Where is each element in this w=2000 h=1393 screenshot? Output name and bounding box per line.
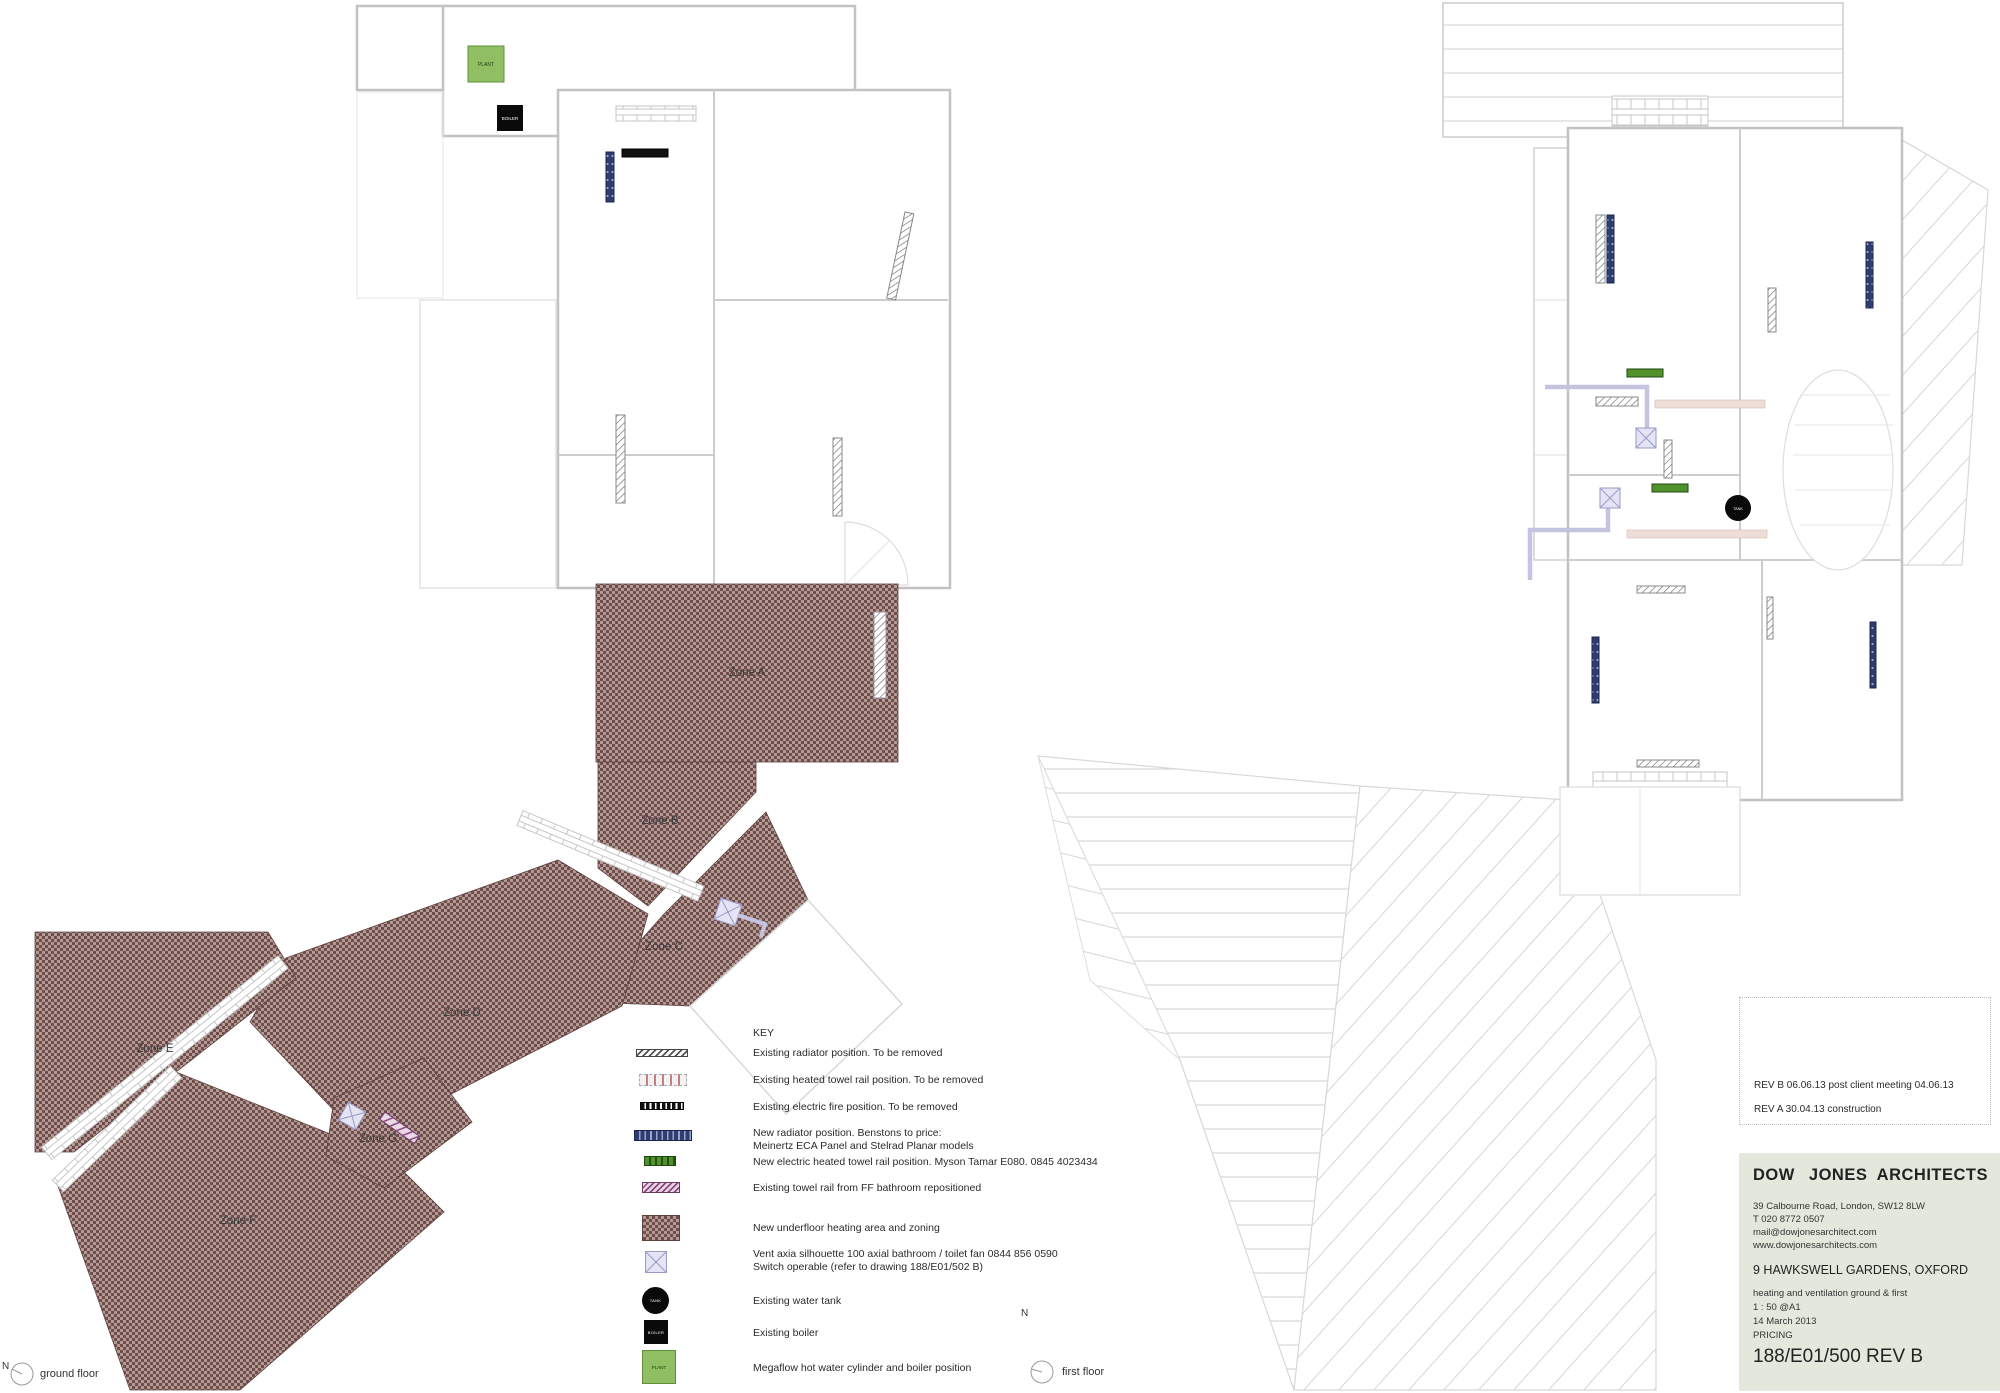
legend-label: Existing water tank <box>753 1295 841 1308</box>
legend-label: New underfloor heating area and zoning <box>753 1222 940 1235</box>
repositioned-towel-rail-symbol <box>642 1182 680 1193</box>
existing-electric-fire-symbol <box>640 1102 684 1110</box>
vent-fan-symbol <box>645 1251 667 1273</box>
firm-name-right: ARCHITECTS <box>1877 1166 1988 1185</box>
gf-boiler-box: BOILER <box>497 105 523 131</box>
ff-existing-radiator <box>1664 440 1672 478</box>
firm-website: www.dowjonesarchitects.com <box>1753 1239 1877 1252</box>
ground-floor-label: ground floor <box>40 1368 99 1380</box>
drawing-number: 188/E01/500 REV B <box>1753 1346 1923 1368</box>
gf-top-stub-room <box>357 6 445 90</box>
key-title: KEY <box>753 1027 774 1040</box>
ff-existing-radiator <box>1596 215 1605 283</box>
legend-label: Vent axia silhouette 100 axial bathroom … <box>753 1248 1058 1273</box>
legend-label: Megaflow hot water cylinder and boiler p… <box>753 1362 971 1375</box>
ff-stair <box>1783 370 1893 570</box>
gf-plant-box: PLANT <box>468 46 504 82</box>
ground-floor-north-arrow <box>11 1363 33 1385</box>
ff-window-band-bottom <box>1593 772 1727 787</box>
firm-name-left: DOW JONES <box>1753 1166 1867 1185</box>
zone-label-b: Zone B <box>641 815 678 827</box>
ff-vent-fan <box>1600 488 1620 508</box>
legend-label-line2: Switch operable (refer to drawing 188/E0… <box>753 1261 1058 1274</box>
ff-existing-radiator <box>1767 597 1773 639</box>
gf-existing-radiator <box>833 438 842 516</box>
legend-label: Existing towel rail from FF bathroom rep… <box>753 1182 981 1195</box>
legend-label: Existing radiator position. To be remove… <box>753 1047 943 1060</box>
water-tank-symbol: TANK <box>642 1287 669 1314</box>
megaflow-plant-symbol: PLANT <box>642 1350 676 1384</box>
legend-label-line1: New radiator position. Benstons to price… <box>753 1127 974 1140</box>
legend-label: New electric heated towel rail position.… <box>753 1156 1098 1169</box>
underfloor-heating-symbol <box>642 1215 680 1241</box>
ff-existing-radiator <box>1637 760 1699 767</box>
legend-label-line1: Vent axia silhouette 100 axial bathroom … <box>753 1248 1058 1261</box>
floor-plans-drawing: PLANT BOILER <box>0 0 2000 1393</box>
title-block: DOW JONES ARCHITECTS 39 Calbourne Road, … <box>1739 1153 2000 1391</box>
legend-label: New radiator position. Benstons to price… <box>753 1127 974 1152</box>
drawing-scale: 1 : 50 @A1 <box>1753 1301 1801 1314</box>
legend-label: Existing boiler <box>753 1327 818 1340</box>
ff-new-radiator <box>1607 215 1614 283</box>
ff-window-band-top <box>1612 96 1708 126</box>
ff-existing-radiator <box>1637 586 1685 593</box>
ff-tank: TANK <box>1725 495 1751 521</box>
gf-boiler-label: BOILER <box>502 116 519 121</box>
ff-existing-radiator <box>1596 397 1638 406</box>
firm-email: mail@dowjonesarchitect.com <box>1753 1226 1877 1239</box>
revision-box: REV B 06.06.13 post client meeting 04.06… <box>1739 997 1991 1125</box>
legend-label: Existing electric fire position. To be r… <box>753 1101 958 1114</box>
zone-label-c: Zone C <box>645 941 683 953</box>
gf-new-radiator <box>606 152 614 202</box>
revision-b: REV B 06.06.13 post client meeting 04.06… <box>1754 1080 1954 1091</box>
ff-new-towel-rail <box>1627 369 1663 377</box>
new-radiator-symbol <box>634 1130 692 1141</box>
drawing-title: heating and ventilation ground & first <box>1753 1287 1907 1300</box>
first-floor-north-arrow <box>1031 1361 1053 1383</box>
ff-new-radiator <box>1592 637 1599 703</box>
new-electric-towel-rail-symbol <box>644 1156 676 1166</box>
existing-towel-rail-symbol <box>639 1074 687 1086</box>
zone-label-d: Zone D <box>443 1007 481 1019</box>
ff-existing-radiator <box>1768 288 1776 332</box>
legend-label: Existing heated towel rail position. To … <box>753 1074 983 1087</box>
zone-label-f: Zone F <box>220 1215 256 1227</box>
ff-new-towel-rail <box>1652 484 1688 492</box>
ff-roof-right <box>1902 140 1988 565</box>
zone-label-g: Zone G <box>359 1133 397 1145</box>
north-letter-ground: N <box>2 1361 9 1372</box>
gf-zonea-existing-radiator <box>874 612 886 698</box>
revision-a: REV A 30.04.13 construction <box>1754 1104 1881 1115</box>
first-floor-label: first floor <box>1062 1366 1104 1378</box>
gf-existing-radiator <box>616 415 625 503</box>
ff-new-radiator <box>1866 242 1873 308</box>
zone-label-e: Zone E <box>136 1043 173 1055</box>
legend-label-line2: Meinertz ECA Panel and Stelrad Planar mo… <box>753 1140 974 1153</box>
drawing-date: 14 March 2013 <box>1753 1315 1816 1328</box>
firm-name: DOW JONES ARCHITECTS <box>1753 1166 1988 1185</box>
gf-electric-fire <box>622 149 668 157</box>
gf-main-block <box>558 90 950 588</box>
ff-tank-label: TANK <box>1733 507 1743 511</box>
drawing-sheet: { "key": { "title": "KEY", "items": [ {"… <box>0 0 2000 1393</box>
boiler-symbol: BOILER <box>644 1320 668 1344</box>
ff-new-radiator <box>1870 622 1876 688</box>
gf-plant-label: PLANT <box>478 62 494 68</box>
drawing-status: PRICING <box>1753 1329 1793 1342</box>
zone-label-a: Zone A <box>729 667 766 679</box>
existing-radiator-symbol <box>636 1049 688 1057</box>
north-letter-first: N <box>1021 1308 1028 1319</box>
project-title: 9 HAWKSWELL GARDENS, OXFORD <box>1753 1263 1968 1277</box>
gf-window-band <box>616 106 696 121</box>
ff-vent-fan <box>1636 428 1656 448</box>
firm-phone: T 020 8772 0507 <box>1753 1213 1825 1226</box>
firm-address: 39 Calbourne Road, London, SW12 8LW <box>1753 1200 1925 1213</box>
